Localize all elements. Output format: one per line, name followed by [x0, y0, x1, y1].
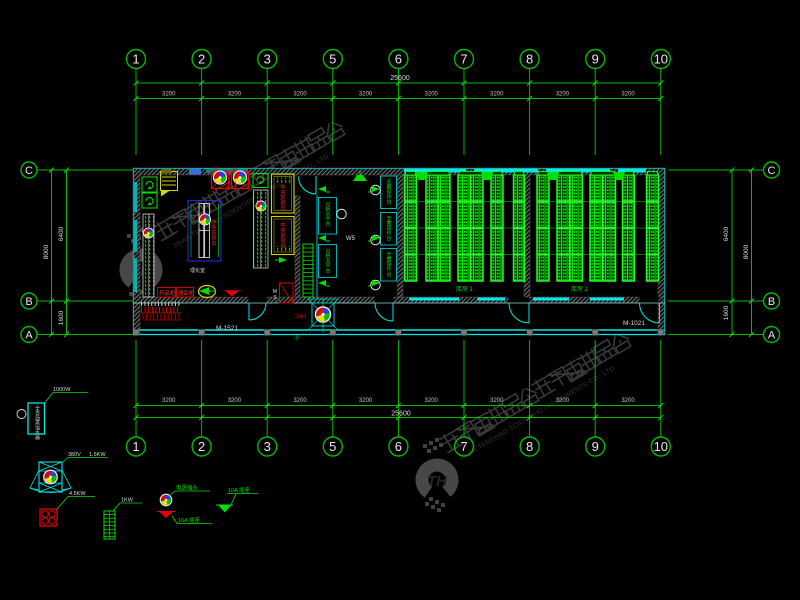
svg-text:8000: 8000: [743, 244, 750, 259]
svg-text:MS: MS: [272, 289, 278, 301]
svg-text:分析天平台: 分析天平台: [325, 247, 331, 274]
svg-text:理化室: 理化室: [190, 267, 205, 274]
svg-text:XAJ: XAJ: [296, 314, 306, 320]
svg-text:中央实验台: 中央实验台: [279, 221, 285, 250]
svg-text:B: B: [768, 296, 775, 308]
svg-text:2: 2: [198, 52, 205, 67]
svg-text:3200: 3200: [621, 398, 635, 404]
svg-text:无菌操作台: 无菌操作台: [386, 179, 392, 205]
svg-text:3: 3: [264, 439, 271, 454]
svg-text:1600: 1600: [58, 310, 65, 325]
svg-text:3200: 3200: [490, 92, 504, 98]
svg-text:8: 8: [526, 439, 533, 454]
svg-text:无菌操作台: 无菌操作台: [386, 252, 392, 278]
svg-text:A: A: [768, 330, 776, 342]
svg-text:3200: 3200: [293, 398, 307, 404]
svg-text:器皿柜: 器皿柜: [178, 289, 195, 297]
svg-text:3200: 3200: [490, 398, 504, 404]
svg-text:库房 2: 库房 2: [571, 285, 589, 293]
svg-text:3: 3: [264, 52, 271, 67]
svg-text:10A 插座: 10A 插座: [228, 486, 251, 494]
svg-text:分析天平台: 分析天平台: [325, 200, 331, 227]
svg-text:B: B: [25, 296, 32, 308]
svg-text:3200: 3200: [621, 92, 635, 98]
svg-text:3200: 3200: [425, 92, 439, 98]
svg-text:A: A: [25, 330, 33, 342]
svg-text:5: 5: [329, 439, 336, 454]
svg-text:3200: 3200: [359, 398, 373, 404]
svg-text:3200: 3200: [293, 92, 307, 98]
svg-text:1: 1: [132, 439, 139, 454]
svg-text:库房 1: 库房 1: [456, 285, 474, 293]
svg-text:6: 6: [395, 52, 402, 67]
svg-text:3200: 3200: [228, 398, 242, 404]
svg-text:1: 1: [132, 52, 139, 67]
svg-text:3200: 3200: [162, 398, 176, 404]
svg-text:药品柜: 药品柜: [159, 289, 176, 297]
svg-text:3200: 3200: [556, 92, 570, 98]
svg-text:8: 8: [526, 52, 533, 67]
svg-text:8000: 8000: [43, 244, 50, 259]
svg-text:2: 2: [198, 439, 205, 454]
svg-text:16A 插座: 16A 插座: [178, 516, 201, 524]
svg-text:9: 9: [592, 52, 599, 67]
svg-text:3200: 3200: [556, 398, 570, 404]
svg-text:6400: 6400: [58, 226, 65, 241]
svg-text:3200: 3200: [162, 92, 176, 98]
svg-text:M-1521: M-1521: [216, 325, 238, 332]
svg-text:6: 6: [395, 439, 402, 454]
svg-text:无菌操作台: 无菌操作台: [386, 216, 392, 242]
svg-text:电源插头: 电源插头: [176, 484, 199, 492]
svg-text:10: 10: [654, 439, 668, 454]
svg-text:3200: 3200: [359, 92, 373, 98]
svg-text:1600: 1600: [723, 305, 730, 320]
svg-text:3200: 3200: [425, 398, 439, 404]
svg-text:3200: 3200: [228, 92, 242, 98]
svg-text:全自动蒸馏水器: 全自动蒸馏水器: [34, 405, 39, 441]
svg-text:C: C: [768, 165, 776, 177]
svg-text:中央实验台: 中央实验台: [210, 218, 216, 247]
svg-text:7: 7: [460, 52, 467, 67]
svg-text:中央实验台: 中央实验台: [279, 183, 285, 212]
svg-text:PF: PF: [233, 167, 239, 172]
svg-text:7: 7: [460, 439, 467, 454]
svg-text:10: 10: [654, 52, 668, 67]
svg-text:25600: 25600: [390, 75, 410, 82]
svg-text:C: C: [25, 165, 33, 177]
svg-text:5: 5: [329, 52, 336, 67]
svg-text:6400: 6400: [723, 226, 730, 241]
svg-text:W5: W5: [346, 236, 356, 242]
svg-text:M-1021: M-1021: [623, 320, 645, 327]
svg-text:PF: PF: [213, 167, 219, 172]
svg-text:25600: 25600: [391, 411, 411, 418]
svg-text:9: 9: [592, 439, 599, 454]
